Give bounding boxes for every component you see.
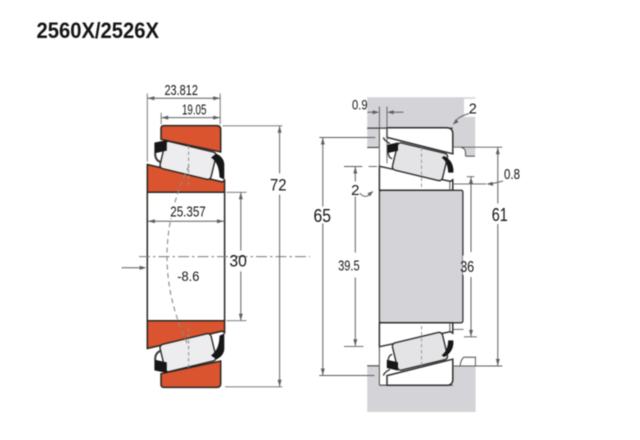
svg-text:39.5: 39.5 (338, 257, 360, 274)
svg-text:65: 65 (314, 206, 332, 226)
svg-text:2: 2 (469, 102, 477, 118)
svg-text:30: 30 (229, 252, 247, 271)
svg-text:19.05: 19.05 (182, 102, 207, 119)
svg-text:72: 72 (270, 176, 287, 194)
svg-text:0.9: 0.9 (352, 96, 368, 112)
svg-text:2: 2 (351, 182, 359, 199)
svg-text:0.8: 0.8 (504, 166, 520, 183)
svg-text:36: 36 (460, 259, 474, 276)
svg-text:25.357: 25.357 (170, 203, 206, 220)
svg-text:23.812: 23.812 (164, 82, 198, 99)
svg-text:2560X/2526X: 2560X/2526X (37, 18, 160, 43)
svg-text:61: 61 (492, 205, 508, 225)
svg-text:-8.6: -8.6 (177, 268, 199, 284)
